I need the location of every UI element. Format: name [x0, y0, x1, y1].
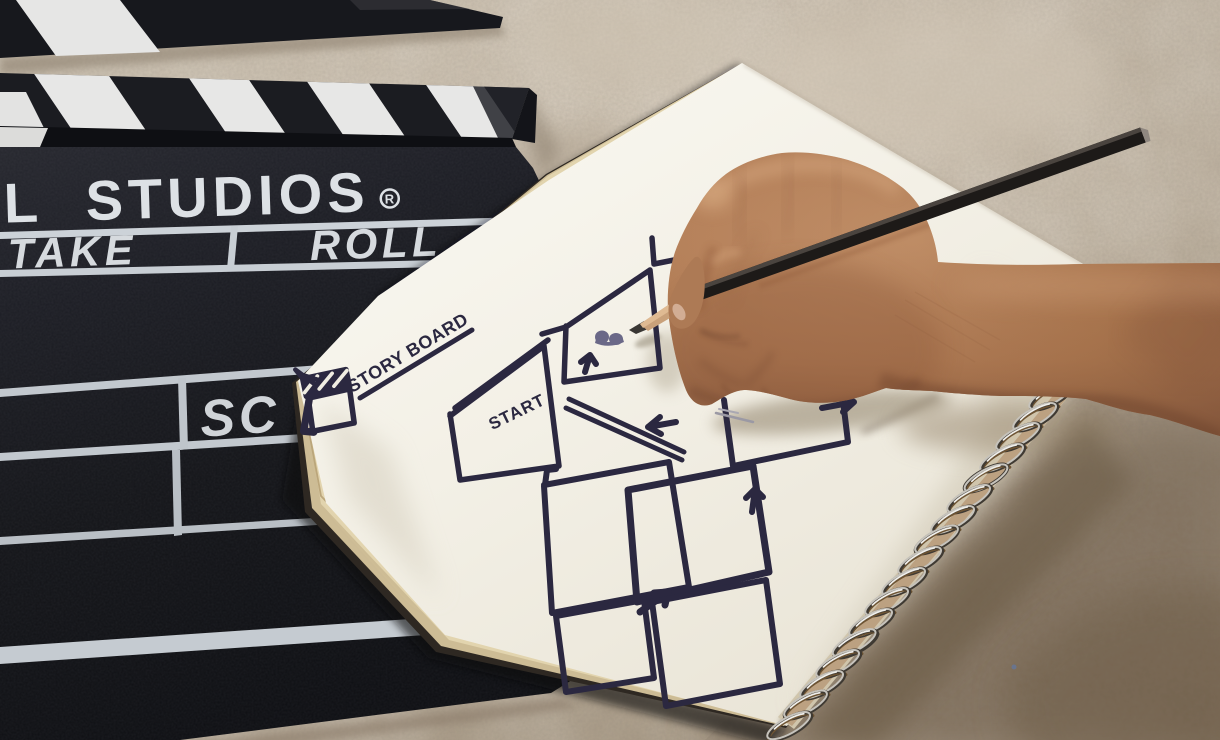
- svg-text:SC: SC: [198, 385, 282, 448]
- svg-text:TAKE: TAKE: [7, 226, 138, 277]
- svg-text:R: R: [385, 191, 395, 206]
- svg-text:ROLL: ROLL: [309, 217, 443, 269]
- svg-text:L: L: [3, 171, 41, 235]
